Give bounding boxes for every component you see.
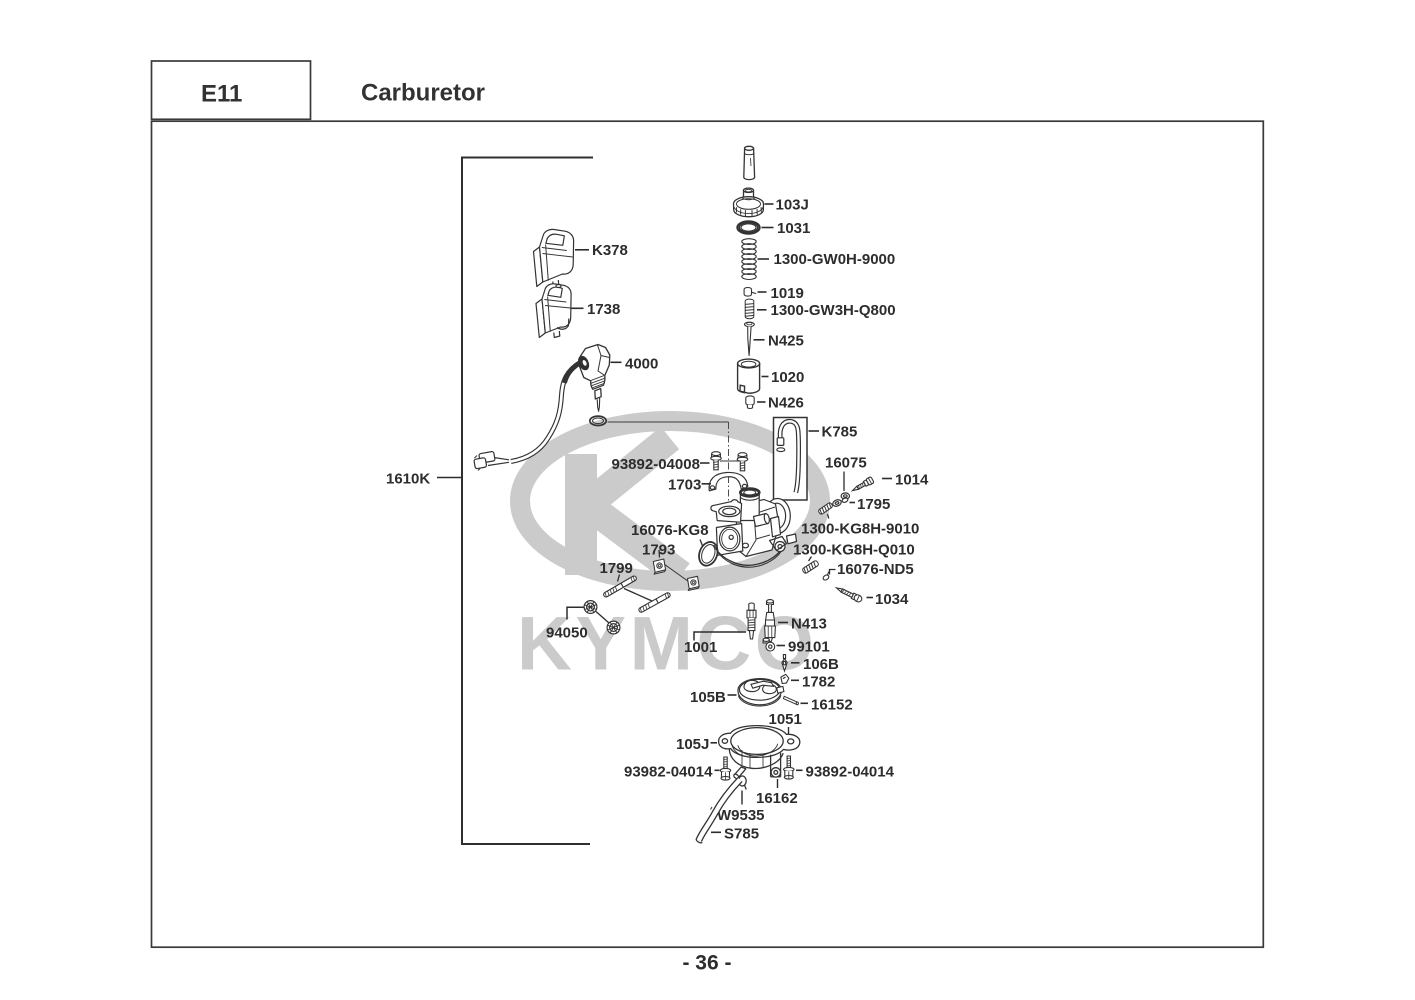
svg-text:105J: 105J — [676, 736, 709, 753]
svg-text:93892-04014: 93892-04014 — [806, 763, 895, 780]
svg-text:1610K: 1610K — [386, 471, 430, 488]
svg-text:N425: N425 — [768, 332, 804, 349]
svg-text:4000: 4000 — [625, 355, 658, 372]
svg-text:16076-KG8: 16076-KG8 — [631, 522, 709, 539]
svg-text:1782: 1782 — [802, 674, 835, 691]
svg-text:1793: 1793 — [642, 542, 675, 559]
svg-text:W9535: W9535 — [717, 807, 765, 824]
svg-text:16076-ND5: 16076-ND5 — [837, 561, 914, 578]
svg-text:1795: 1795 — [857, 496, 890, 513]
svg-text:16162: 16162 — [756, 790, 798, 807]
svg-text:105B: 105B — [690, 689, 726, 706]
svg-text:K378: K378 — [592, 242, 628, 259]
svg-text:- 36 -: - 36 - — [682, 952, 731, 975]
svg-text:1799: 1799 — [600, 560, 633, 577]
svg-text:106B: 106B — [803, 656, 839, 673]
svg-text:1703: 1703 — [668, 476, 701, 493]
svg-text:1300-GW3H-Q800: 1300-GW3H-Q800 — [771, 302, 896, 319]
svg-text:16075: 16075 — [825, 455, 867, 472]
svg-text:1738: 1738 — [587, 301, 620, 318]
svg-text:N413: N413 — [791, 616, 827, 633]
svg-text:1020: 1020 — [771, 369, 804, 386]
svg-text:94050: 94050 — [546, 624, 588, 641]
svg-text:N426: N426 — [768, 395, 804, 412]
svg-text:E11: E11 — [201, 81, 242, 108]
svg-text:1031: 1031 — [777, 220, 810, 237]
svg-text:1014: 1014 — [895, 472, 929, 489]
svg-text:S785: S785 — [724, 825, 759, 842]
svg-text:1300-GW0H-9000: 1300-GW0H-9000 — [774, 251, 896, 268]
svg-text:1300-KG8H-Q010: 1300-KG8H-Q010 — [793, 542, 915, 559]
svg-text:1019: 1019 — [771, 285, 804, 302]
svg-text:16152: 16152 — [811, 696, 853, 713]
svg-text:1034: 1034 — [875, 591, 909, 608]
svg-text:K785: K785 — [822, 424, 858, 441]
svg-text:Carburetor: Carburetor — [361, 80, 485, 107]
svg-text:1300-KG8H-9010: 1300-KG8H-9010 — [801, 521, 919, 538]
svg-text:93982-04014: 93982-04014 — [624, 763, 713, 780]
svg-text:103J: 103J — [776, 197, 809, 214]
svg-text:1001: 1001 — [684, 639, 717, 656]
svg-text:1051: 1051 — [769, 711, 802, 728]
svg-text:99101: 99101 — [788, 638, 830, 655]
svg-text:93892-04008: 93892-04008 — [612, 456, 700, 473]
